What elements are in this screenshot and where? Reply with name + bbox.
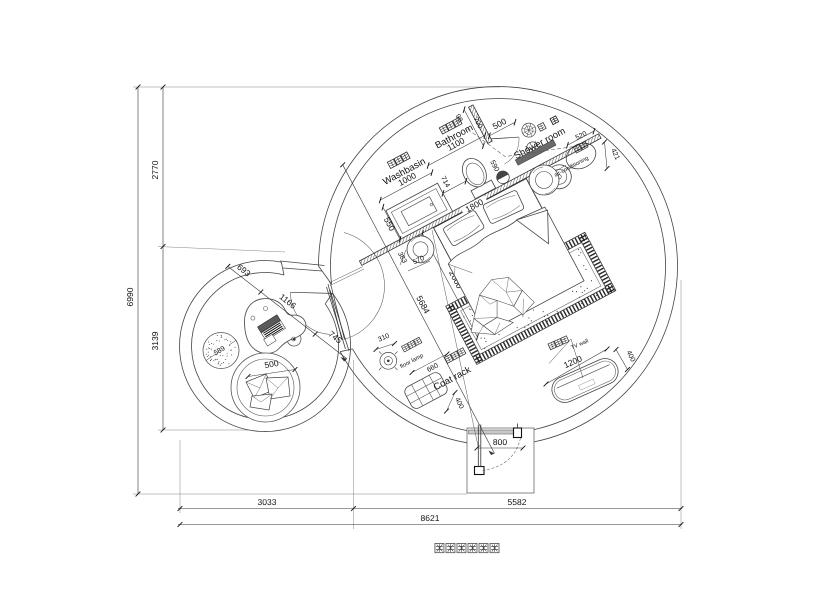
- svg-text:6990: 6990: [125, 287, 135, 306]
- svg-text:3033: 3033: [258, 497, 277, 507]
- svg-text:800: 800: [493, 437, 507, 447]
- svg-text:5582: 5582: [508, 497, 527, 507]
- svg-text:2770: 2770: [150, 160, 160, 179]
- svg-text:3139: 3139: [150, 331, 160, 350]
- svg-text:8621: 8621: [421, 513, 440, 523]
